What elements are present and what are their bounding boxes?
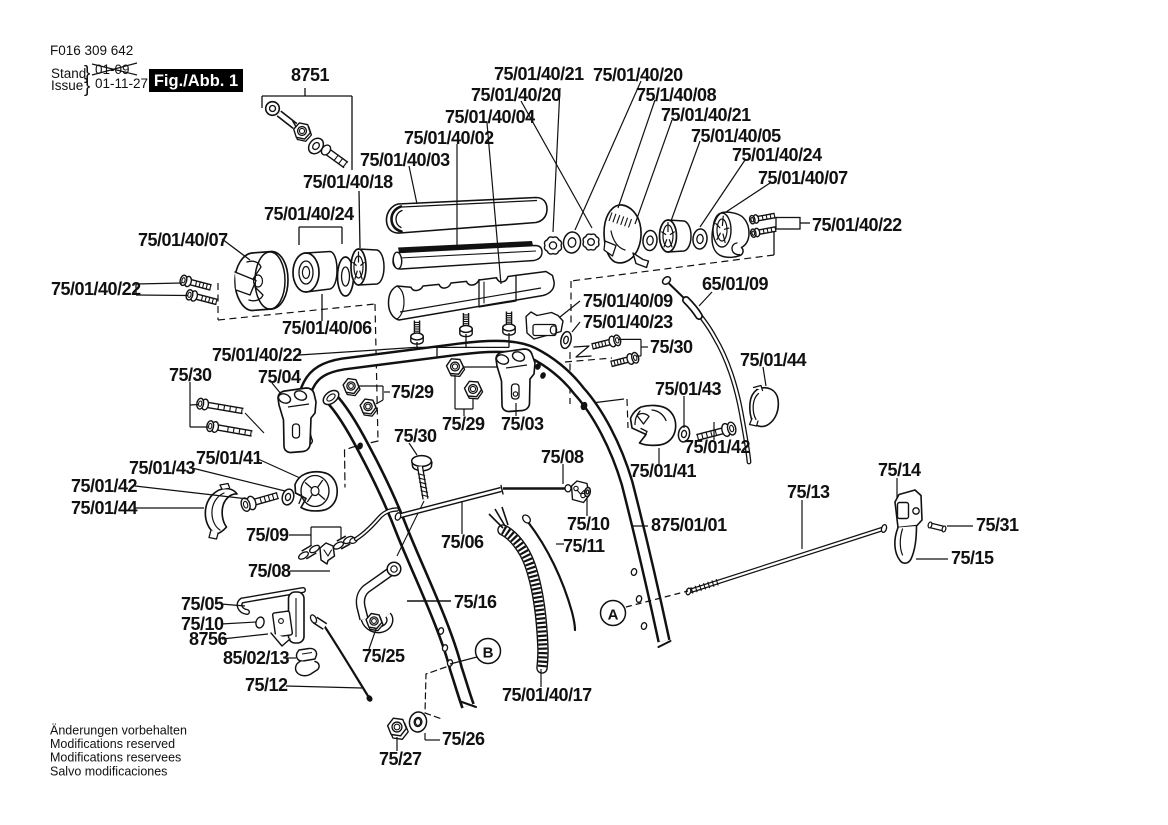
svg-text:75/01/44: 75/01/44 (71, 498, 138, 518)
svg-text:75/14: 75/14 (878, 460, 921, 480)
svg-text:Modifications reservees: Modifications reservees (50, 751, 181, 765)
svg-text:75/01/43: 75/01/43 (129, 458, 196, 478)
svg-text:75/05: 75/05 (181, 594, 224, 614)
svg-text:A: A (608, 607, 619, 624)
svg-text:75/01/40/03: 75/01/40/03 (360, 150, 450, 170)
svg-text:75/30: 75/30 (650, 337, 693, 357)
svg-text:75/01/40/20: 75/01/40/20 (593, 65, 683, 85)
svg-text:75/01/40/22: 75/01/40/22 (51, 279, 141, 299)
svg-text:75/01/40/24: 75/01/40/24 (732, 145, 822, 165)
svg-text:75/13: 75/13 (787, 482, 830, 502)
svg-text:75/01/40/22: 75/01/40/22 (212, 345, 302, 365)
svg-text:75/01/40/09: 75/01/40/09 (583, 291, 673, 311)
svg-text:75/08: 75/08 (541, 447, 584, 467)
svg-text:75/01/40/18: 75/01/40/18 (303, 172, 393, 192)
svg-text:}: } (84, 76, 90, 97)
svg-text:Änderungen vorbehalten: Änderungen vorbehalten (50, 724, 187, 738)
svg-text:65/01/09: 65/01/09 (702, 274, 769, 294)
svg-text:75/25: 75/25 (362, 646, 405, 666)
svg-text:75/31: 75/31 (976, 515, 1019, 535)
svg-text:8756: 8756 (189, 629, 228, 649)
svg-text:75/30: 75/30 (169, 365, 212, 385)
svg-text:75/10: 75/10 (567, 514, 610, 534)
svg-text:75/26: 75/26 (442, 729, 485, 749)
svg-text:85/02/13: 85/02/13 (223, 648, 290, 668)
svg-text:75/01/40/04: 75/01/40/04 (445, 107, 535, 127)
svg-text:F016 309 642: F016 309 642 (50, 43, 133, 58)
svg-text:B: B (483, 645, 494, 662)
svg-text:75/11: 75/11 (563, 536, 605, 556)
svg-text:75/01/41: 75/01/41 (630, 461, 697, 481)
svg-text:75/01/40/21: 75/01/40/21 (494, 64, 584, 84)
svg-text:875/01/01: 875/01/01 (651, 515, 727, 535)
svg-text:Salvo modificaciones: Salvo modificaciones (50, 764, 167, 778)
svg-text:75/06: 75/06 (441, 532, 484, 552)
svg-text:75/01/40/02: 75/01/40/02 (404, 128, 494, 148)
svg-text:75/01/40/23: 75/01/40/23 (583, 312, 673, 332)
svg-text:75/01/40/24: 75/01/40/24 (264, 204, 354, 224)
svg-text:75/16: 75/16 (454, 592, 497, 612)
svg-text:Fig./Abb. 1: Fig./Abb. 1 (154, 72, 238, 90)
svg-text:75/12: 75/12 (245, 675, 288, 695)
svg-text:75/01/40/07: 75/01/40/07 (138, 230, 228, 250)
svg-text:75/30: 75/30 (394, 426, 437, 446)
svg-text:Issue: Issue (51, 78, 83, 93)
svg-text:75/27: 75/27 (379, 749, 422, 769)
svg-text:75/09: 75/09 (246, 525, 289, 545)
svg-text:8751: 8751 (291, 65, 330, 85)
svg-text:75/01/40/05: 75/01/40/05 (691, 126, 781, 146)
svg-text:75/01/40/21: 75/01/40/21 (661, 105, 751, 125)
svg-text:75/15: 75/15 (951, 548, 994, 568)
svg-text:75/01/40/07: 75/01/40/07 (758, 168, 848, 188)
svg-text:75/01/41: 75/01/41 (196, 448, 263, 468)
svg-text:75/29: 75/29 (442, 414, 485, 434)
svg-text:75/01/43: 75/01/43 (655, 379, 722, 399)
svg-text:75/01/42: 75/01/42 (684, 437, 751, 457)
svg-text:75/01/40/17: 75/01/40/17 (502, 685, 592, 705)
svg-text:75/01/42: 75/01/42 (71, 476, 138, 496)
svg-text:75/08: 75/08 (248, 561, 291, 581)
svg-text:75/04: 75/04 (258, 367, 301, 387)
svg-text:75/01/44: 75/01/44 (740, 350, 807, 370)
svg-text:75/01/40/20: 75/01/40/20 (471, 85, 561, 105)
svg-text:75/01/40/06: 75/01/40/06 (282, 318, 372, 338)
svg-text:75/01/40/22: 75/01/40/22 (812, 215, 902, 235)
svg-text:01-11-27: 01-11-27 (95, 76, 148, 91)
svg-text:75/29: 75/29 (391, 382, 434, 402)
svg-text:75/03: 75/03 (501, 414, 544, 434)
svg-text:75/1/40/08: 75/1/40/08 (636, 85, 717, 105)
svg-text:Modifications reserved: Modifications reserved (50, 737, 175, 751)
